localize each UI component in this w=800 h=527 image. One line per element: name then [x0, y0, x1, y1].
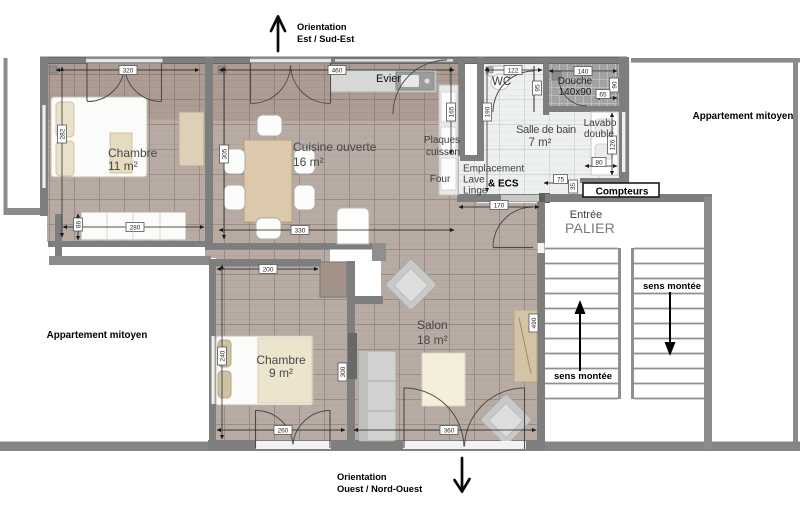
svg-text:260: 260 [278, 428, 289, 435]
svg-text:240: 240 [220, 350, 227, 361]
svg-text:Lavabo: Lavabo [584, 118, 617, 129]
svg-text:Salle de bain: Salle de bain [516, 124, 576, 136]
svg-text:Cuisine ouverte: Cuisine ouverte [293, 140, 377, 154]
svg-text:Ouest / Nord-Ouest: Ouest / Nord-Ouest [337, 484, 422, 494]
svg-text:200: 200 [263, 267, 274, 274]
svg-text:35: 35 [570, 183, 577, 191]
svg-text:460: 460 [332, 68, 343, 75]
svg-text:9 m²: 9 m² [269, 366, 293, 380]
svg-text:165: 165 [449, 106, 456, 117]
svg-text:360: 360 [444, 428, 455, 435]
svg-text:Chambre: Chambre [108, 146, 158, 160]
svg-text:cuisson: cuisson [426, 147, 460, 158]
svg-text:330: 330 [295, 228, 306, 235]
svg-text:Evier: Evier [376, 73, 401, 85]
svg-text:Est / Sud-Est: Est / Sud-Est [297, 34, 354, 44]
svg-text:Plaques: Plaques [424, 135, 460, 146]
svg-text:90: 90 [612, 81, 619, 89]
svg-text:86: 86 [76, 221, 83, 229]
svg-text:140x90: 140x90 [559, 87, 592, 98]
svg-text:95: 95 [535, 84, 542, 92]
svg-text:Appartement mitoyen: Appartement mitoyen [47, 330, 148, 341]
svg-text:Douche: Douche [558, 76, 593, 87]
svg-text:300: 300 [340, 366, 347, 377]
svg-text:11 m²: 11 m² [108, 159, 138, 173]
svg-text:Salon: Salon [417, 318, 448, 332]
svg-text:sens montée: sens montée [643, 281, 701, 292]
svg-text:320: 320 [123, 68, 134, 75]
svg-text:305: 305 [222, 148, 229, 159]
svg-text:& ECS: & ECS [488, 179, 519, 190]
svg-text:Orientation: Orientation [337, 472, 387, 482]
svg-text:490: 490 [531, 317, 538, 328]
svg-text:Chambre: Chambre [256, 353, 306, 367]
svg-text:170: 170 [494, 203, 505, 210]
svg-text:280: 280 [130, 225, 141, 232]
svg-text:122: 122 [508, 68, 519, 75]
svg-text:80: 80 [595, 160, 603, 167]
svg-text:126: 126 [610, 139, 617, 150]
svg-text:Orientation: Orientation [297, 22, 347, 32]
svg-text:75: 75 [557, 177, 565, 184]
svg-text:Linge: Linge [463, 186, 488, 197]
svg-text:18 m²: 18 m² [417, 333, 448, 347]
svg-text:PALIER: PALIER [565, 220, 615, 236]
svg-text:Appartement mitoyen: Appartement mitoyen [693, 111, 794, 122]
svg-text:Compteurs: Compteurs [596, 187, 649, 198]
svg-text:WC: WC [492, 76, 511, 88]
svg-text:140: 140 [578, 69, 589, 76]
svg-text:7 m²: 7 m² [529, 137, 552, 149]
svg-text:Four: Four [430, 174, 451, 185]
svg-text:Emplacement: Emplacement [463, 164, 524, 175]
svg-text:double: double [584, 129, 614, 140]
svg-text:282: 282 [60, 128, 67, 139]
svg-text:sens montée: sens montée [554, 371, 612, 382]
svg-text:190: 190 [485, 106, 492, 117]
svg-text:65: 65 [599, 92, 607, 99]
svg-text:Lave: Lave [463, 175, 485, 186]
svg-text:16 m²: 16 m² [293, 155, 324, 169]
